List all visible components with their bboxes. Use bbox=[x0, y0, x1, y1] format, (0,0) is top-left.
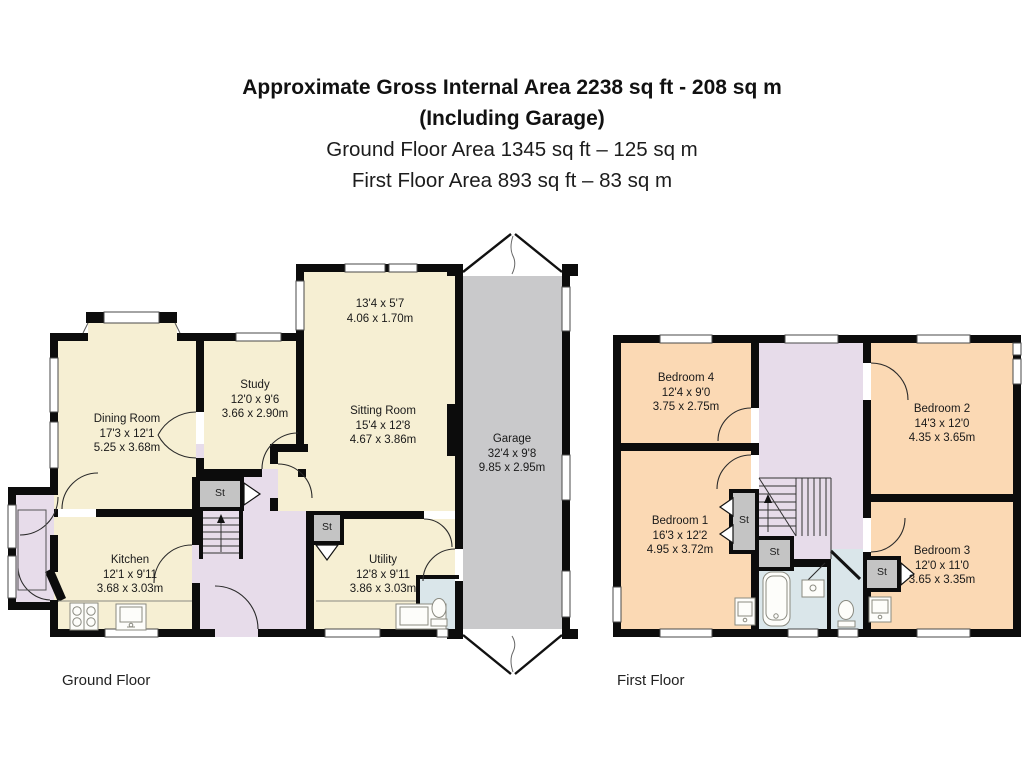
bedroom-1-label: Bedroom 1 16'3 x 12'2 4.95 x 3.72m bbox=[610, 514, 750, 558]
ground-toilet-icon bbox=[431, 599, 447, 627]
bed1-side-window bbox=[613, 587, 621, 622]
bathroom-sink-icon bbox=[802, 580, 824, 597]
kitchen-label: Kitchen 12'1 x 9'11 3.68 x 3.03m bbox=[60, 553, 200, 597]
sitting-top-window-1 bbox=[345, 264, 385, 272]
bed2-window bbox=[917, 335, 970, 343]
wc-window-first bbox=[838, 629, 858, 637]
porch-window-2 bbox=[8, 556, 16, 598]
ground-st-label-2: St bbox=[313, 521, 341, 533]
landing-window bbox=[785, 335, 838, 343]
bathroom-window bbox=[788, 629, 818, 637]
bed2-side-window-1 bbox=[1013, 343, 1021, 355]
bathtub-icon bbox=[763, 572, 790, 626]
sitting-side-window bbox=[296, 281, 304, 330]
bedroom-2-label: Bedroom 2 14'3 x 12'0 4.35 x 3.65m bbox=[871, 402, 1013, 446]
first-toilet-icon bbox=[838, 601, 855, 628]
study-label: Study 12'0 x 9'6 3.66 x 2.90m bbox=[195, 378, 315, 422]
first-st-label-1: St bbox=[732, 514, 756, 526]
garage-window-1 bbox=[562, 287, 570, 331]
sitting-room-label: Sitting Room 15'4 x 12'8 4.67 x 3.86m bbox=[313, 404, 453, 448]
study-window bbox=[236, 333, 281, 341]
ground-floor-caption: Ground Floor bbox=[62, 672, 150, 689]
sitting-top-window-2 bbox=[389, 264, 417, 272]
dining-window-1 bbox=[50, 358, 58, 412]
wc-window bbox=[437, 629, 448, 637]
floorplan-page: Approximate Gross Internal Area 2238 sq … bbox=[0, 0, 1024, 768]
bed1-window bbox=[660, 629, 712, 637]
utility-label: Utility 12'8 x 9'11 3.86 x 3.03m bbox=[313, 553, 453, 597]
ground-st-label-1: St bbox=[206, 487, 234, 499]
bed4-window bbox=[660, 335, 712, 343]
bay-area-label: 13'4 x 5'7 4.06 x 1.70m bbox=[320, 297, 440, 326]
utility-window bbox=[325, 629, 380, 637]
first-st-label-3: St bbox=[868, 566, 896, 578]
hob-icon bbox=[70, 603, 98, 630]
bed3-sink-icon bbox=[869, 597, 891, 622]
garage-window-3 bbox=[562, 571, 570, 617]
bed2-side-window-2 bbox=[1013, 359, 1021, 384]
bedroom-4-label: Bedroom 4 12'4 x 9'0 3.75 x 2.75m bbox=[616, 371, 756, 415]
first-floor-caption: First Floor bbox=[617, 672, 685, 689]
bay-window bbox=[104, 312, 159, 323]
bed1-sink-icon bbox=[735, 598, 755, 625]
first-st-label-2: St bbox=[761, 546, 788, 558]
floorplan-drawing bbox=[0, 0, 1024, 768]
porch-window-1 bbox=[8, 505, 16, 548]
dining-room-label: Dining Room 17'3 x 12'1 5.25 x 3.68m bbox=[57, 412, 197, 456]
bed3-window bbox=[917, 629, 970, 637]
kitchen-sink-icon bbox=[116, 604, 146, 630]
garage-label: Garage 32'4 x 9'8 9.85 x 2.95m bbox=[452, 432, 572, 476]
